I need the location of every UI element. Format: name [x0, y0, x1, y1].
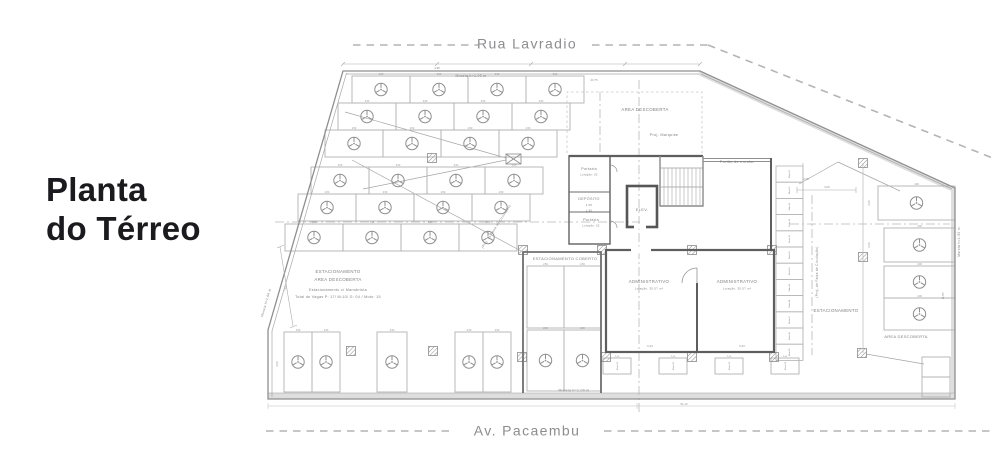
plan-label: 2,05 — [586, 203, 593, 207]
plan-label: Lotação: 30,57 m² — [723, 287, 751, 291]
street-label-top: Rua Lavradio — [477, 36, 577, 52]
dimension-lines — [268, 62, 955, 409]
column-marker — [429, 347, 438, 356]
dimension-label: 2,50 — [338, 165, 343, 167]
dimension-label: 2,50 — [396, 165, 401, 167]
floor-plan-drawing: 2,502,502,502,502,502,502,502,502,502,50… — [0, 0, 1000, 467]
moto-stall-label: Moto 10 — [788, 267, 791, 275]
parking-circle-mark — [334, 174, 346, 186]
dimension-label: 2,50 — [495, 74, 500, 76]
dimension-label: 2,00 — [867, 242, 871, 248]
dimension-label: 11,85 — [941, 292, 945, 299]
plan-label: ADMINISTRATIVO — [717, 279, 758, 284]
building-walls — [506, 92, 863, 393]
dimension-label: 3,00 — [275, 361, 279, 367]
parking-stall — [564, 266, 601, 328]
dimension-label: 2,50 — [467, 330, 472, 332]
streets: Rua Lavradio Av. Pacaembu — [266, 36, 995, 439]
plan-label: Mureta h=1.00 m — [558, 389, 589, 393]
parking-circle-mark — [433, 83, 445, 95]
parking-circle-mark — [379, 201, 391, 213]
parking-circle-mark — [424, 231, 436, 243]
moto-stall-label: Moto 01 — [616, 361, 619, 370]
marquise-projection-outline — [567, 92, 702, 153]
dimension-label: 2,50 — [390, 330, 395, 332]
dimension-label: 4,90 — [917, 296, 922, 298]
parking-circle-mark — [366, 231, 378, 243]
plan-label: Portaria — [583, 218, 599, 222]
parking-stalls-layer — [284, 76, 955, 397]
moto-stall-label: Moto 13 — [788, 218, 791, 226]
leader-line — [345, 112, 506, 158]
boundary-inner-lines — [272, 73, 952, 397]
parking-circle-mark — [913, 308, 925, 320]
dimension-label: 2,50 — [383, 192, 388, 194]
parking-circle-mark — [913, 239, 925, 251]
leader-line — [866, 354, 924, 364]
dimension-label: 2,50 — [580, 264, 585, 266]
parking-circle-mark — [477, 110, 489, 122]
parking-circle-mark — [292, 356, 304, 368]
plan-label: AREA DESCOBERTA — [884, 334, 928, 339]
parking-circle-mark — [913, 276, 925, 288]
dimension-label: 3,05 — [824, 185, 830, 189]
dimension-label: 4,90 — [917, 226, 922, 228]
parking-circle-mark — [539, 354, 551, 366]
portaria-door-arcs — [610, 165, 617, 228]
moto-stall-label: Moto 05 — [788, 348, 791, 356]
moto-stall-label: Moto 14 — [788, 202, 791, 210]
plan-label: Lotação: 02 — [580, 173, 598, 177]
plan-label: Total de Vagas P: 17/ M:10/ G: 04 / Moto… — [295, 295, 381, 299]
moto-stall-label: Moto 09 — [788, 283, 791, 291]
parking-circle-mark — [419, 110, 431, 122]
dimension-label: 2,50 — [526, 128, 531, 130]
moto-stall-label: Moto 12 — [788, 234, 791, 242]
dimension-label: 2,50 — [428, 222, 433, 224]
dimension-label: 2,50 — [486, 222, 491, 224]
street-label-bottom: Av. Pacaembu — [474, 423, 581, 439]
dimension-label: 2,50 — [553, 74, 558, 76]
column-marker — [347, 347, 356, 356]
moto-stall-label: Moto 07 — [788, 315, 791, 323]
leader-line — [363, 160, 506, 189]
page: Planta do Térreo — [0, 0, 1000, 467]
moto-stall-label: Moto 03 — [728, 361, 731, 370]
parking-circle-mark — [508, 174, 520, 186]
dimension-label: 2,50 — [454, 165, 459, 167]
dimension-label: 2,50 — [352, 128, 357, 130]
plan-label: Mureta h=1.00 m — [260, 288, 272, 317]
dimension-label: 4,98 — [434, 66, 440, 70]
dimension-label: 2,50 — [468, 128, 473, 130]
dimension-label: 2,50 — [410, 128, 415, 130]
dimension-label: 2,05 — [803, 177, 809, 181]
dimension-label: 2,50 — [365, 101, 370, 103]
dimension-label: 5,43 — [739, 344, 745, 348]
parking-circle-mark — [522, 137, 534, 149]
dimension-label: 2,50 — [499, 192, 504, 194]
parking-circle-mark — [463, 356, 475, 368]
boundary-bands — [268, 71, 955, 399]
parking-circle-mark — [386, 356, 398, 368]
dimension-label: 4,90 — [917, 264, 922, 266]
parking-circle-mark — [576, 354, 588, 366]
dimension-label: 2,50 — [543, 264, 548, 266]
plan-label: Lotação: 30,57 m² — [635, 287, 663, 291]
administrativo-block — [606, 250, 774, 352]
column-marker — [858, 349, 867, 358]
parking-circle-mark — [491, 83, 503, 95]
dimension-label: 2,50 — [423, 101, 428, 103]
parking-circle-mark — [437, 201, 449, 213]
plan-label: Lotação: 02 — [582, 224, 600, 228]
moto-stall-label: Moto 16 — [788, 170, 791, 178]
parking-stall — [922, 357, 950, 377]
moto-stall-label: Moto 08 — [788, 299, 791, 307]
column-marker — [428, 154, 437, 163]
plan-label: Mureta h=1.00 m — [455, 74, 486, 78]
plan-label: AREA DESCOBERTA — [314, 277, 361, 282]
dimension-label: 6,43 — [647, 344, 653, 348]
dimension-label: 2,50 — [539, 101, 544, 103]
plan-label: ESTACIONAMENTO — [813, 308, 858, 313]
plan-label: ESTACIONAMENTO COBERTO — [533, 256, 598, 261]
plan-label: AREA DESCOBERTA — [621, 107, 668, 112]
dimension-label: 2,50 — [580, 328, 585, 330]
dimension-label: 23,75 — [591, 78, 598, 82]
column-marker — [602, 353, 611, 362]
dimension-label: 4,90 — [914, 184, 919, 186]
parking-circle-mark — [406, 137, 418, 149]
boundary-outline — [268, 71, 955, 399]
plan-label: Mureta h=1.00 m — [957, 227, 961, 257]
plan-label: ELEV. — [636, 207, 648, 212]
plan-label: DEPÓSITO — [578, 196, 599, 201]
dimension-label: 2,50 — [495, 330, 500, 332]
dimension-label: 2,50 — [379, 74, 384, 76]
staircase — [660, 156, 703, 206]
covered-parking-outline — [523, 252, 601, 393]
plan-label: ADMINISTRATIVO — [629, 279, 670, 284]
moto-stall-label: Moto 06 — [788, 332, 791, 340]
dimension-label: 2,50 — [325, 192, 330, 194]
leader-line — [838, 162, 900, 191]
plan-label: ESTACIONAMENTO — [315, 269, 360, 274]
parking-circle-mark — [535, 110, 547, 122]
parking-circle-mark — [320, 356, 332, 368]
dimension-label: 2,50 — [441, 192, 446, 194]
admin-door-opening — [631, 247, 651, 254]
dimension-label: 2,50 — [296, 330, 301, 332]
parking-circle-mark — [450, 174, 462, 186]
dimension-label: 2,50 — [543, 328, 548, 330]
column-marker — [518, 353, 527, 362]
admin-door-arc — [682, 268, 697, 283]
dimension-label: 2,00 — [867, 200, 871, 206]
dimension-label: 51,13 — [681, 402, 688, 406]
parking-circle-mark — [910, 197, 922, 209]
parking-circle-mark — [375, 83, 387, 95]
moto-stall-label: Moto 11 — [788, 251, 791, 259]
plan-label: Portaria — [581, 167, 597, 171]
dimension-label: 2,50 — [481, 101, 486, 103]
dimension-label: 2,50 — [312, 222, 317, 224]
plan-label: 1,50 — [586, 209, 593, 213]
parking-circle-mark — [549, 83, 561, 95]
plan-label: Portão de enrolar — [720, 160, 755, 164]
dimension-label: 2,50 — [370, 222, 375, 224]
column-marker — [770, 353, 779, 362]
plan-label: (Proj. de Faixa de Circulação) — [815, 246, 819, 297]
parking-circle-mark — [361, 110, 373, 122]
moto-stall-label: Moto 04 — [784, 361, 787, 370]
ramp-marker-box — [506, 154, 521, 164]
dimension-label: 2,50 — [437, 74, 442, 76]
column-marker — [688, 353, 697, 362]
plan-label: Proj. Marquise — [650, 133, 679, 137]
plan-label: Estacionamento c/ Manobrista — [309, 288, 368, 292]
parking-circle-mark — [308, 231, 320, 243]
plot-boundary — [268, 71, 955, 399]
right-area-divider-lines — [803, 163, 863, 360]
parking-circle-mark — [348, 137, 360, 149]
dimension-label: 2,50 — [512, 165, 517, 167]
parking-circle-mark — [321, 201, 333, 213]
parking-circle-mark — [491, 356, 503, 368]
moto-stall-label: Moto 02 — [672, 361, 675, 370]
parking-stall — [527, 266, 564, 328]
moto-stall-label: Moto 15 — [788, 186, 791, 194]
dimension-label: 2,50 — [324, 330, 329, 332]
